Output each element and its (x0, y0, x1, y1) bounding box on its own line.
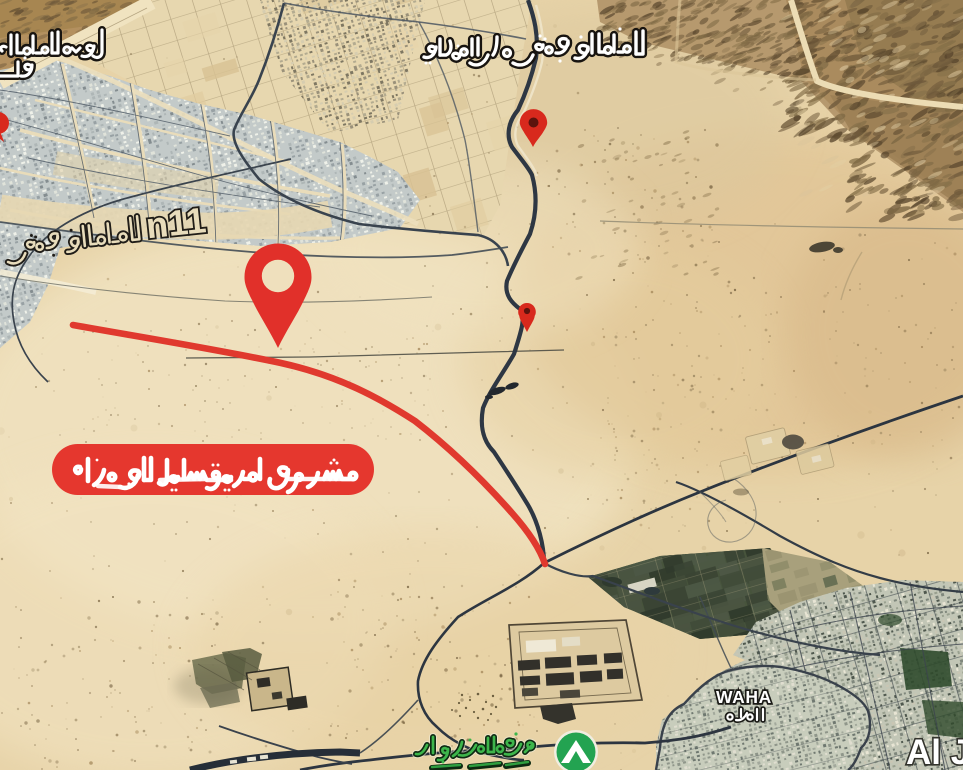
svg-text:n11: n11 (144, 199, 208, 246)
svg-text:WAHA: WAHA (716, 687, 772, 707)
svg-text:Al J: Al J (906, 733, 963, 770)
